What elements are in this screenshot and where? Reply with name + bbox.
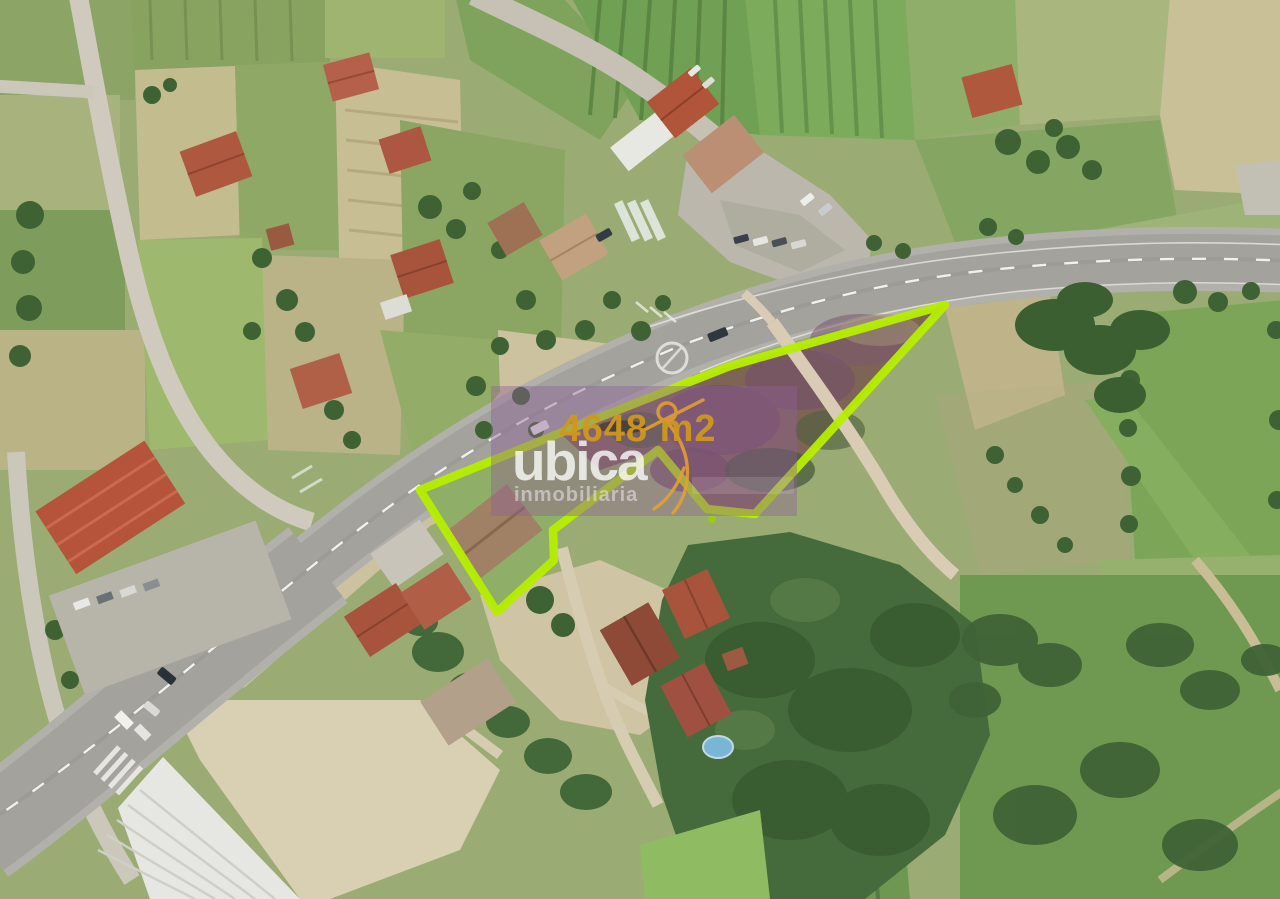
swimming-pool [703,736,733,758]
aerial-scene: 4648 m2 ubica inmobiliaria [0,0,1280,899]
tagline-text: inmobiliaria [514,484,638,506]
local-road-spur [0,86,94,92]
watermark: 4648 m2 ubica inmobiliaria [491,386,797,516]
satellite-photo: 4648 m2 ubica inmobiliaria [0,0,1280,899]
brand-text: ubica [512,430,648,492]
